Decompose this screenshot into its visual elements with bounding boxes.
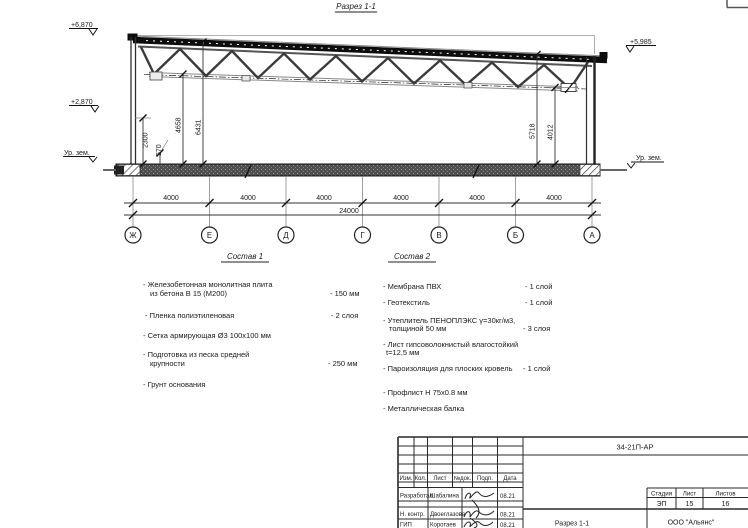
dim-4658: 4658: [176, 117, 183, 133]
sostav2-item: - Мембрана ПВХ: [383, 282, 441, 291]
roof-right-cap: [600, 52, 608, 59]
title-block: 34-21П-АР Изм. Кол. Лист №док. Подп. Дат…: [398, 437, 748, 528]
col-list: Лист: [433, 476, 446, 482]
axis-label-1: Ж: [129, 231, 137, 240]
company-name: ООО "Альянс": [668, 520, 715, 527]
col-data: Дата: [503, 476, 517, 482]
ground-level-left: Ур. зем.: [63, 150, 97, 162]
signature-3: [464, 522, 493, 527]
slab-right-hatch: [580, 165, 600, 176]
dim-2300: 2300: [143, 132, 150, 148]
sostav1-heading: Состав 1: [227, 252, 263, 261]
staff-role: ГИП: [400, 523, 412, 528]
level-mark-icon: [89, 157, 97, 162]
elevation-top-left-label: +6,870: [71, 22, 93, 29]
sostav1-list: Состав 1 - Железобетонная монолитная пли…: [143, 252, 360, 389]
sostav2-item: - Пароизоляция для плоских кровель: [383, 364, 513, 373]
sostav1-item-value: - 150 мм: [330, 289, 360, 298]
sostav2-item: - Геотекстиль: [383, 298, 430, 307]
sostav2-item-value: - 1 слой: [523, 364, 550, 373]
bay-dim-5: 4000: [469, 195, 485, 202]
staff-name: Шабалина: [430, 494, 460, 500]
bay-dim-3: 4000: [316, 195, 332, 202]
drawing-name: Разрез 1-1: [555, 521, 589, 528]
staff-date: 08.21: [500, 494, 516, 500]
sostav2-list: Состав 2 - Мембрана ПВХ - 1 слой - Геоте…: [383, 252, 552, 413]
axis-label-7: А: [589, 231, 595, 240]
right-column: [587, 56, 595, 165]
truss-gusset-2: [464, 83, 472, 89]
sheet-value: 15: [686, 501, 694, 508]
left-column: [128, 34, 138, 165]
sheets-value: 16: [722, 501, 730, 508]
dim-5718: 5718: [530, 123, 537, 139]
dimension-chain: 4000 4000 4000 4000 4000 4000 24000: [124, 176, 601, 227]
level-mark-icon: [626, 46, 634, 52]
ground-level-right: Ур. зем.: [627, 155, 664, 168]
ground-level-right-label: Ур. зем.: [636, 155, 662, 162]
vertical-dimensions-right: 5718 4012: [530, 51, 579, 168]
stage-table: Стадия Лист Листов ЭП 15 16: [651, 491, 736, 509]
frame-corner: [727, 0, 748, 8]
sostav1-item: - Грунт основания: [143, 380, 205, 389]
doc-number: 34-21П-АР: [616, 443, 653, 452]
view-title: Разрез 1-1: [335, 2, 377, 12]
elevation-mid-left-label: +2,870: [71, 99, 93, 106]
sostav2-item-value: - 1 слой: [525, 298, 552, 307]
sostav2-heading: Состав 2: [394, 252, 431, 261]
dim-570: 570: [156, 144, 163, 156]
staff-name: Двоеглазова: [430, 512, 466, 518]
sostav2-item: толщиной 50 мм: [389, 324, 446, 333]
col-ndok: №док.: [454, 475, 472, 482]
sheet-label: Лист: [683, 491, 697, 498]
bay-dim-6: 4000: [546, 195, 562, 202]
stage-label: Стадия: [651, 491, 672, 498]
sostav1-item: крупности: [150, 359, 185, 368]
sostav1-item: - Железобетонная монолитная плита: [143, 280, 273, 289]
sostav2-item-value: - 3 слоя: [523, 324, 550, 333]
sostav1-item-value: - 250 мм: [328, 359, 358, 368]
drawing-sheet: Разрез 1-1: [0, 0, 748, 528]
staff-name: Коротаев: [430, 523, 456, 528]
bay-dim-1: 4000: [163, 195, 179, 202]
truss-left-end-plate: [150, 72, 162, 80]
sostav1-item: - Пленка полиэтиленовая: [145, 311, 234, 320]
dim-6431: 6431: [196, 119, 203, 135]
total-dim: 24000: [339, 208, 359, 215]
elevation-mid-left: +2,870: [69, 99, 99, 112]
change-table-header: Изм. Кол. Лист №док. Подп. Дата: [400, 475, 518, 482]
dim-4012: 4012: [548, 124, 555, 140]
sostav1-item: - Сетка армирующая Ø3 100х100 мм: [143, 331, 271, 340]
sostav2-item: - Металлическая балка: [383, 404, 465, 413]
elevation-top-right-label: +5,985: [630, 39, 652, 46]
bay-dim-2: 4000: [240, 195, 256, 202]
staff-date: 08.21: [500, 513, 516, 519]
elevation-top-left: +6,870: [69, 22, 98, 35]
axis-bubbles: Ж Е Д Г В Б А: [125, 227, 600, 243]
sostav2-item-value: - 1 слой: [525, 282, 552, 291]
drawing-canvas: Разрез 1-1: [0, 0, 748, 528]
section-view: +6,870 +2,870 +5,985 Ур. зем. Ур. зем.: [63, 22, 664, 178]
staff-date: 08.21: [500, 523, 516, 528]
sostav1-item: - Подготовка из песка средней: [143, 350, 249, 359]
col-kol: Кол.: [415, 476, 427, 482]
axis-label-2: Е: [207, 231, 212, 240]
staff-rows: Разработал Шабалина 08.21 Н. контр. Двое…: [400, 492, 516, 528]
bay-dim-4: 4000: [393, 195, 409, 202]
truss-gusset-1: [242, 76, 250, 82]
sostav1-item-value: - 2 слоя: [331, 311, 358, 320]
sostav1-item: из бетона В 15 (М200): [150, 289, 228, 298]
axis-label-6: Б: [513, 231, 518, 240]
axis-label-4: Г: [360, 231, 365, 240]
sheets-label: Листов: [715, 491, 736, 498]
elevation-top-right: +5,985: [626, 39, 656, 52]
section-title: Разрез 1-1: [336, 2, 376, 11]
level-mark-icon: [91, 106, 99, 112]
axis-label-3: Д: [283, 231, 289, 240]
ground-level-left-label: Ур. зем.: [64, 150, 90, 157]
staff-role: Н. контр.: [400, 512, 425, 518]
stage-value: ЭП: [656, 501, 666, 508]
level-mark-icon: [89, 29, 97, 35]
col-izm: Изм.: [400, 476, 413, 482]
staff-role: Разработал: [400, 494, 433, 500]
level-mark-icon: [627, 163, 635, 168]
col-podp: Подп.: [477, 476, 493, 482]
axis-label-5: В: [436, 231, 441, 240]
sostav2-item: t=12,5 мм: [386, 348, 419, 357]
sostav2-item: - Профлист Н 75х0.8 мм: [383, 388, 468, 397]
